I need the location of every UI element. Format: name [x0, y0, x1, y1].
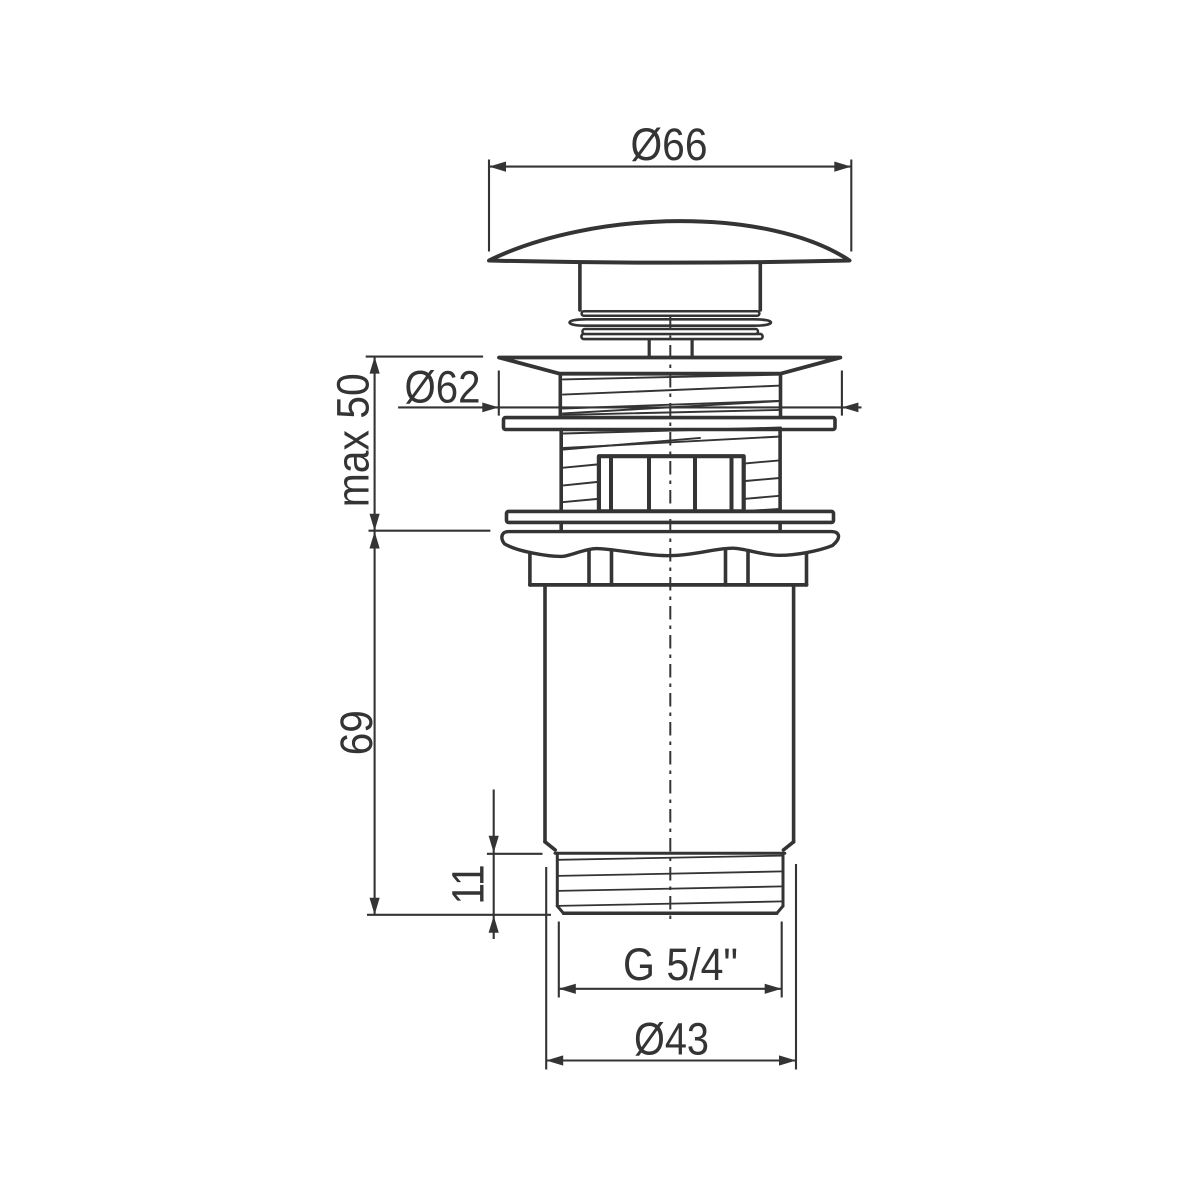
svg-text:Ø62: Ø62 — [405, 362, 481, 413]
svg-text:11: 11 — [443, 864, 494, 904]
svg-text:G 5/4": G 5/4" — [623, 939, 738, 990]
svg-text:69: 69 — [331, 710, 382, 755]
svg-text:Ø66: Ø66 — [631, 119, 708, 170]
svg-text:max 50: max 50 — [328, 373, 379, 507]
svg-text:Ø43: Ø43 — [634, 1014, 709, 1065]
